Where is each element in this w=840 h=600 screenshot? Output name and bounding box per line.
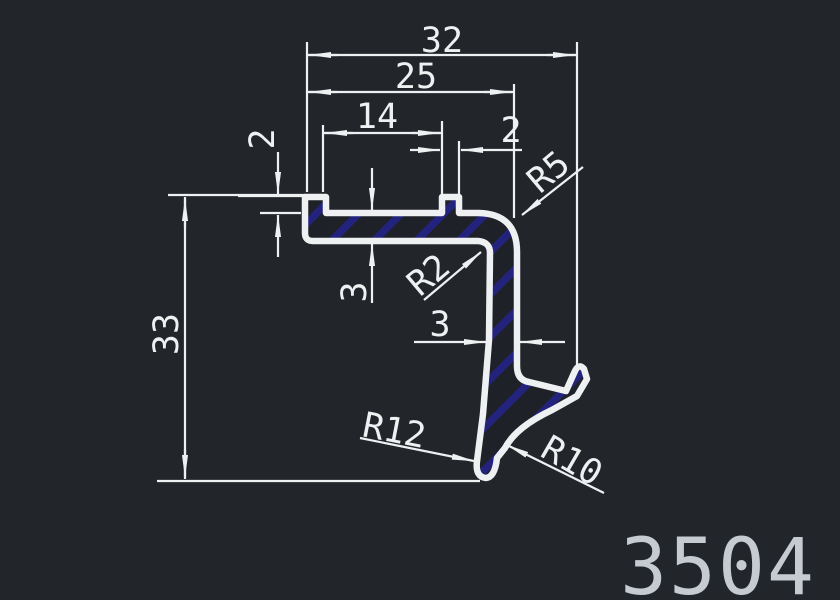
radius-outer-corner: R5 [520, 144, 583, 215]
dim-rib-height-label: 2 [243, 128, 283, 149]
radius-bottom-outer-label: R12 [359, 406, 429, 457]
cad-viewport: 32 25 14 2 2 [0, 0, 840, 600]
radius-bottom-outer: R12 [359, 406, 474, 461]
radius-hook-inner-label: R10 [534, 428, 609, 494]
dim-rib-width: 2 [410, 111, 522, 151]
dim-width-to-leg-label: 25 [395, 57, 437, 97]
dim-width-to-leg: 25 [307, 57, 514, 97]
dim-overall-width-label: 32 [421, 21, 463, 61]
dim-rib-width-label: 2 [500, 111, 521, 151]
dim-overall-height-label: 33 [147, 313, 187, 355]
radius-outer-corner-label: R5 [520, 144, 578, 202]
dim-leg-thickness-label: 3 [429, 305, 450, 345]
cad-drawing: 32 25 14 2 2 [0, 0, 840, 600]
dim-rib-height: 2 [243, 128, 283, 257]
part-number-label: 3504 [620, 523, 816, 600]
dim-rib-spacing-label: 14 [356, 97, 398, 137]
radius-inner-corner: R2 [400, 247, 481, 305]
radius-inner-corner-label: R2 [400, 247, 458, 305]
radius-hook-inner: R10 [507, 428, 609, 494]
dim-overall-height: 33 [147, 197, 187, 479]
dim-overall-width: 32 [307, 21, 577, 61]
dim-flange-thickness-label: 3 [335, 281, 375, 302]
dim-rib-spacing: 14 [323, 97, 442, 137]
